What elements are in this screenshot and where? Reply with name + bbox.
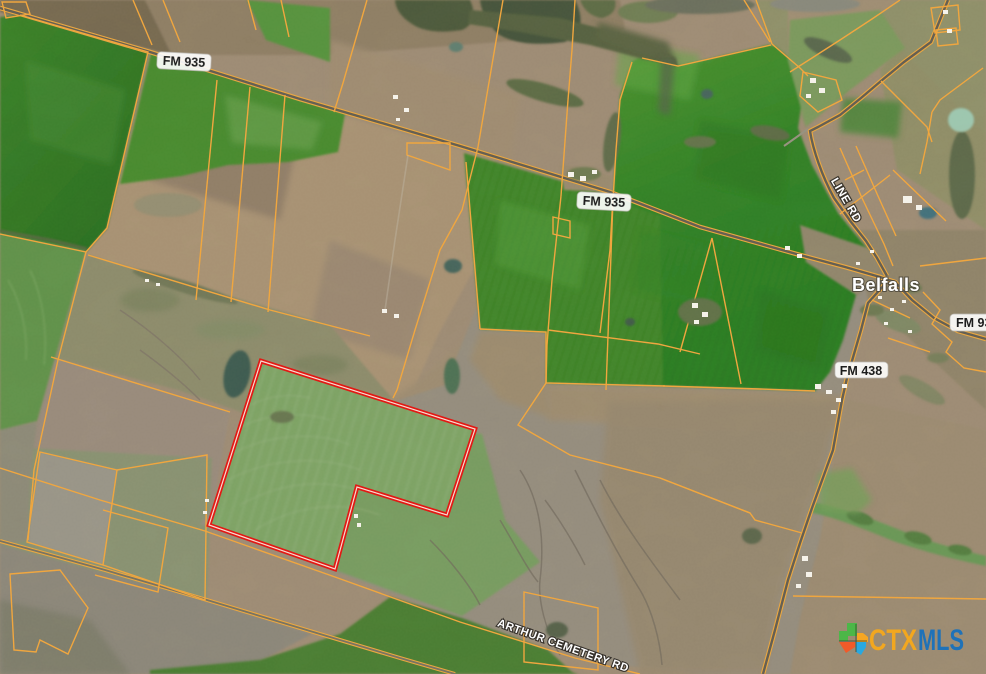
- svg-text:MLS: MLS: [918, 624, 964, 657]
- svg-text:FM 935: FM 935: [582, 194, 625, 210]
- svg-text:Belfalls: Belfalls: [852, 275, 920, 295]
- svg-text:CTX: CTX: [869, 624, 917, 657]
- svg-text:FM 438: FM 438: [840, 364, 882, 378]
- svg-text:FM 93: FM 93: [956, 316, 986, 330]
- svg-text:FM 935: FM 935: [162, 54, 205, 70]
